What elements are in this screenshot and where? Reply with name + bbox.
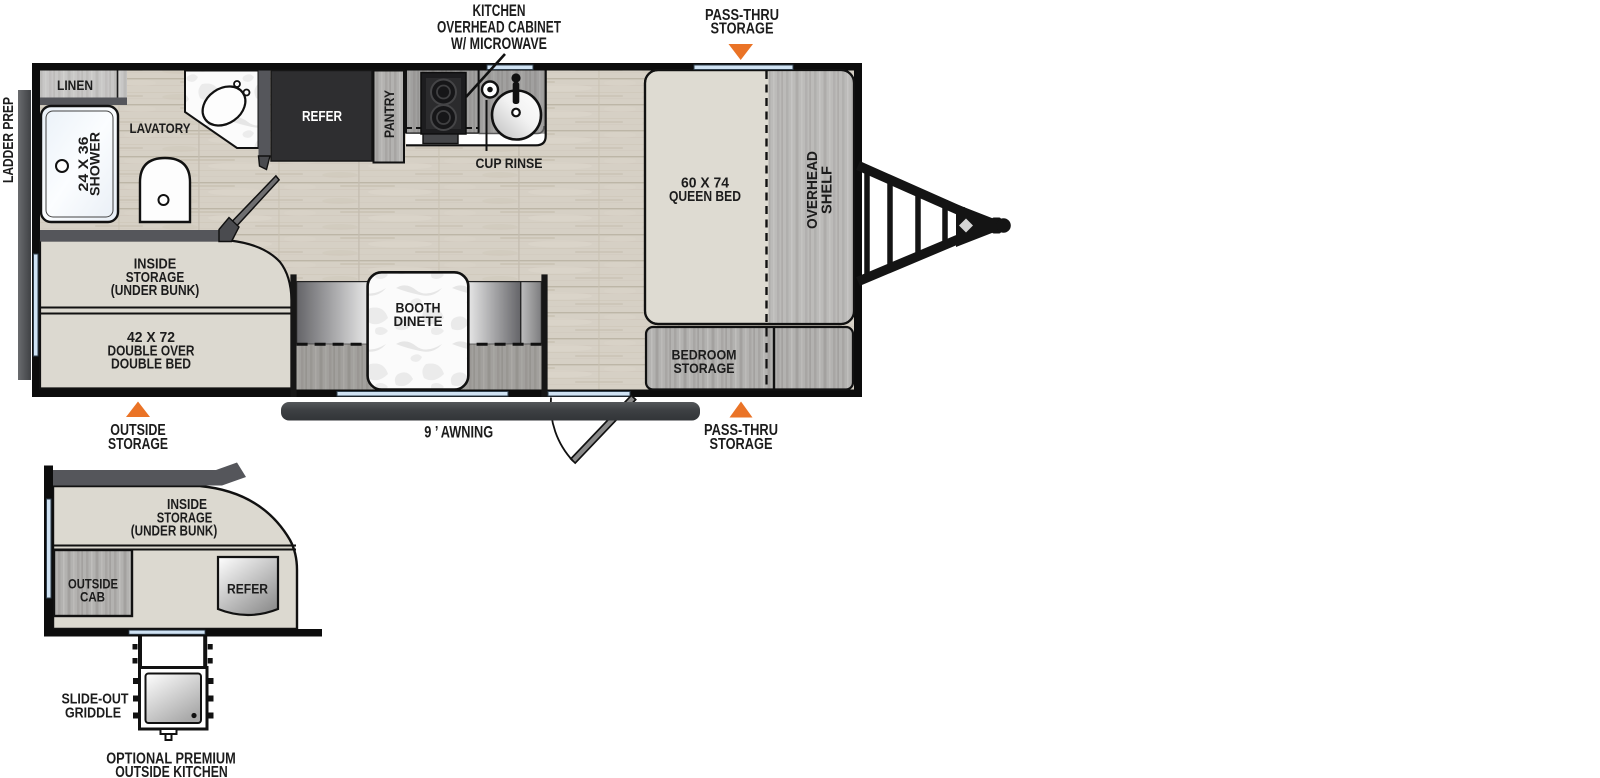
svg-text:STORAGE: STORAGE: [710, 436, 773, 453]
svg-text:KITCHEN: KITCHEN: [473, 2, 526, 20]
svg-text:CAB: CAB: [80, 589, 105, 605]
svg-text:DOUBLE BED: DOUBLE BED: [111, 356, 191, 373]
svg-text:LINEN: LINEN: [57, 78, 93, 93]
svg-text:STORAGE: STORAGE: [711, 21, 774, 38]
svg-text:OUTSIDE KITCHEN: OUTSIDE KITCHEN: [115, 764, 228, 778]
svg-text:QUEEN BED: QUEEN BED: [669, 188, 741, 205]
svg-text:PANTRY: PANTRY: [382, 90, 397, 138]
svg-text:LAVATORY: LAVATORY: [130, 121, 191, 136]
svg-text:SHELF: SHELF: [820, 166, 836, 214]
svg-text:OVERHEAD CABINET: OVERHEAD CABINET: [437, 19, 561, 37]
svg-text:9 ’ AWNING: 9 ’ AWNING: [424, 424, 493, 442]
svg-text:GRIDDLE: GRIDDLE: [65, 705, 121, 722]
svg-text:CUP RINSE: CUP RINSE: [476, 155, 543, 171]
svg-text:(UNDER BUNK): (UNDER BUNK): [111, 282, 200, 299]
svg-text:W/ MICROWAVE: W/ MICROWAVE: [451, 35, 547, 53]
svg-text:DINETE: DINETE: [394, 314, 443, 329]
svg-text:STORAGE: STORAGE: [108, 436, 168, 453]
svg-text:STORAGE: STORAGE: [674, 360, 735, 376]
svg-text:SHOWER: SHOWER: [87, 132, 103, 196]
svg-text:REFER: REFER: [227, 582, 268, 597]
svg-text:(UNDER BUNK): (UNDER BUNK): [131, 523, 218, 540]
svg-text:LADDER PREP: LADDER PREP: [1, 97, 17, 183]
svg-text:REFER: REFER: [302, 109, 342, 125]
